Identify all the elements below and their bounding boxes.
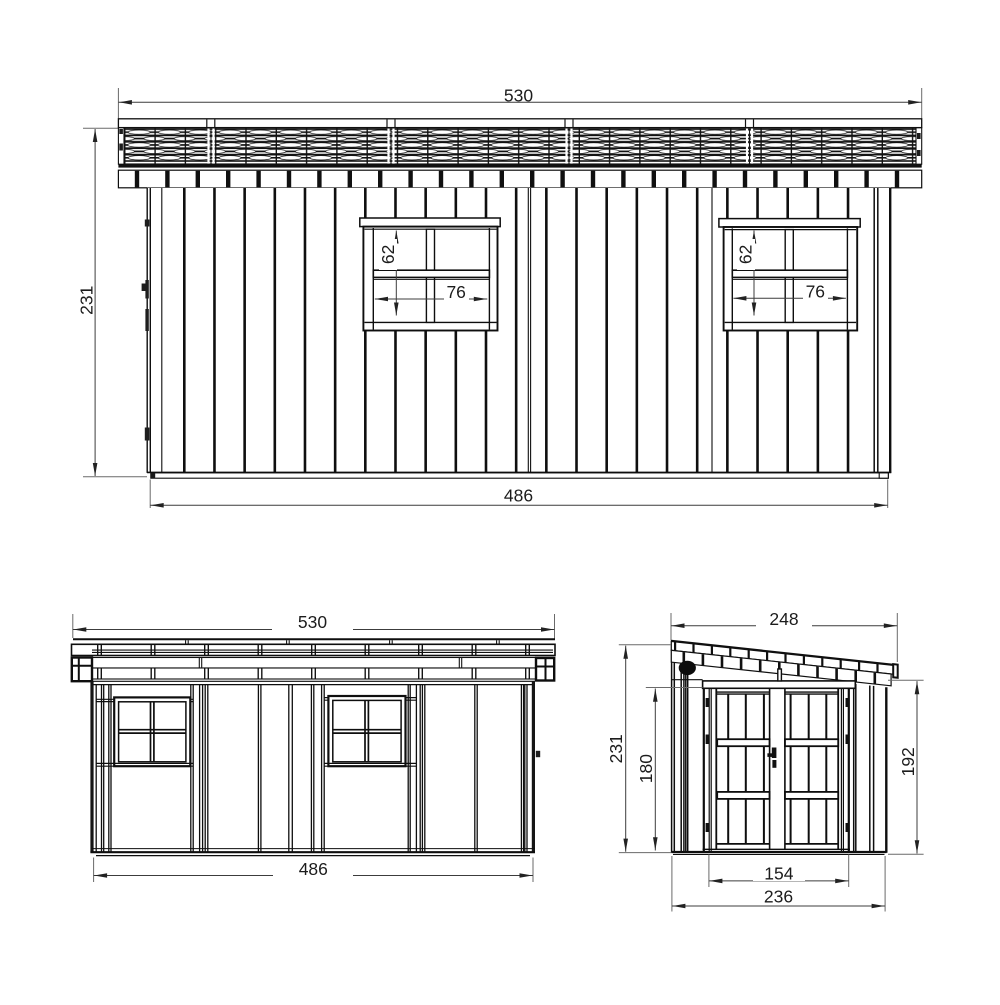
svg-text:62: 62 [736, 245, 756, 264]
svg-text:76: 76 [806, 281, 825, 301]
svg-text:486: 486 [504, 486, 533, 506]
svg-text:236: 236 [764, 886, 793, 906]
svg-text:154: 154 [764, 863, 793, 883]
svg-text:248: 248 [769, 609, 798, 629]
svg-text:530: 530 [298, 612, 327, 632]
svg-text:530: 530 [504, 85, 533, 105]
svg-text:62: 62 [378, 245, 398, 264]
svg-text:231: 231 [77, 286, 97, 315]
svg-text:231: 231 [606, 734, 626, 763]
svg-text:76: 76 [446, 282, 465, 302]
svg-text:486: 486 [299, 859, 328, 879]
svg-text:180: 180 [636, 754, 656, 783]
svg-text:192: 192 [898, 747, 918, 776]
